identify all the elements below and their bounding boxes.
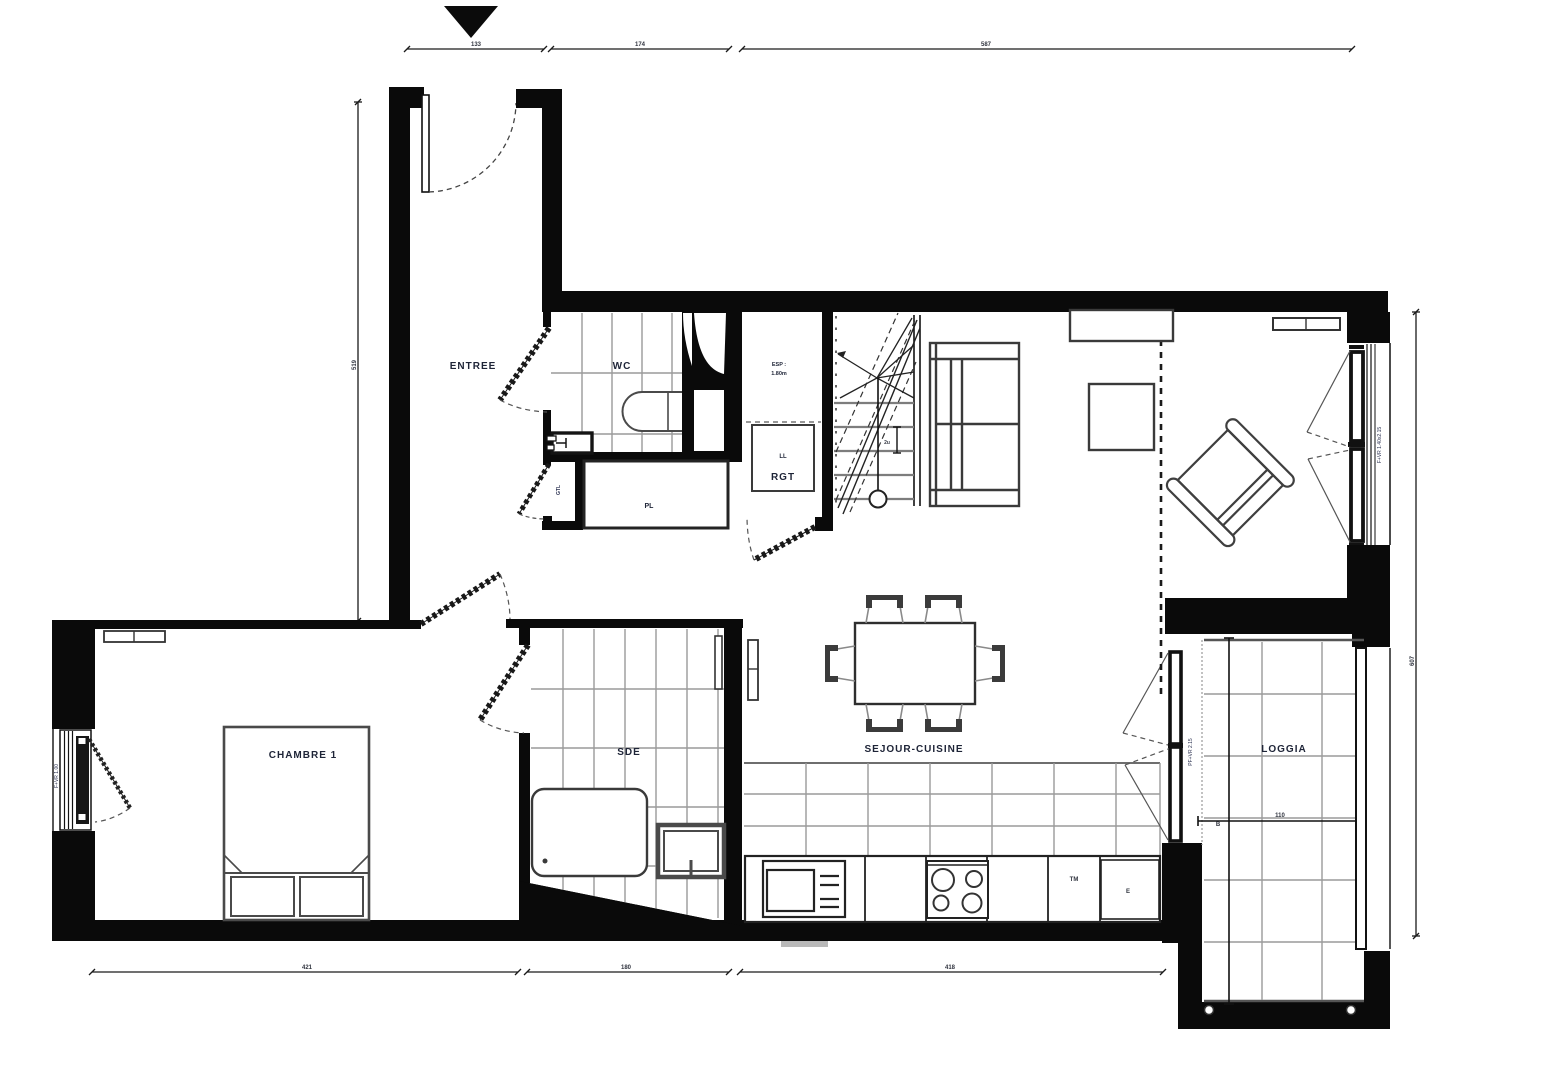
svg-text:180: 180	[621, 965, 632, 971]
svg-text:ESP :: ESP :	[772, 362, 786, 368]
svg-text:F+VR 1.40x2.15: F+VR 1.40x2.15	[1377, 427, 1383, 463]
svg-text:2u: 2u	[884, 440, 890, 446]
svg-text:CHAMBRE 1: CHAMBRE 1	[269, 750, 337, 761]
svg-text:607: 607	[1410, 655, 1416, 666]
svg-text:110: 110	[1275, 813, 1285, 819]
svg-text:421: 421	[302, 965, 313, 971]
svg-text:PF+VR 2.15: PF+VR 2.15	[1188, 738, 1194, 766]
svg-text:174: 174	[635, 42, 646, 48]
svg-text:133: 133	[471, 42, 482, 48]
svg-text:WC: WC	[613, 361, 632, 372]
svg-text:SEJOUR-CUISINE: SEJOUR-CUISINE	[864, 744, 963, 755]
svg-text:SDE: SDE	[617, 747, 641, 758]
svg-text:418: 418	[945, 965, 956, 971]
svg-text:B: B	[1216, 822, 1221, 828]
svg-text:ENTREE: ENTREE	[450, 361, 497, 372]
svg-text:F+VR 1.00: F+VR 1.00	[54, 764, 60, 788]
svg-text:LL: LL	[779, 454, 787, 460]
svg-text:RGT: RGT	[771, 472, 795, 483]
svg-text:LOGGIA: LOGGIA	[1261, 744, 1306, 755]
svg-text:GTL: GTL	[556, 485, 562, 495]
svg-text:TM: TM	[1070, 877, 1079, 883]
svg-text:PL: PL	[645, 503, 655, 510]
svg-text:587: 587	[981, 42, 992, 48]
svg-text:1.80m: 1.80m	[771, 371, 787, 377]
svg-text:E: E	[1126, 889, 1130, 895]
svg-text:519: 519	[352, 359, 358, 370]
